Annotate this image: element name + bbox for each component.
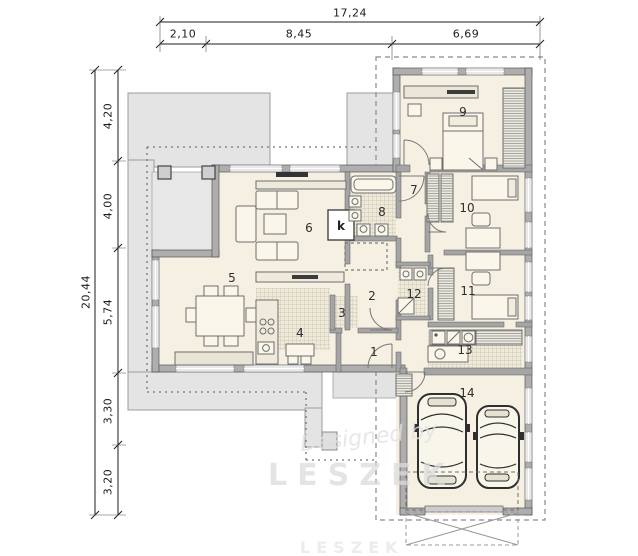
room-label-3: 3 xyxy=(338,306,346,320)
room-label-13: 13 xyxy=(457,343,472,357)
room-label-7: 7 xyxy=(410,183,418,197)
dim-top-total: 17,24 xyxy=(333,7,367,20)
room-label-1: 1 xyxy=(370,345,378,359)
room-label-6: 6 xyxy=(305,221,313,235)
room-label-5: 5 xyxy=(228,271,236,285)
room-label-14: 14 xyxy=(459,386,474,400)
room-label-9: 9 xyxy=(459,105,467,119)
floorplan-page: 17,24 2,10 8,45 6,69 20,44 4,20 4,00 5,7… xyxy=(0,0,638,556)
dim-top-seg-1: 2,10 xyxy=(170,28,197,41)
room-label-11: 11 xyxy=(460,284,475,298)
room-label-12: 12 xyxy=(406,287,421,301)
room-label-2: 2 xyxy=(368,289,376,303)
fireplace-label: k xyxy=(337,219,345,233)
car-right-icon xyxy=(473,406,524,488)
room-label-4: 4 xyxy=(296,326,304,340)
dim-left-seg-2: 4,00 xyxy=(102,193,115,220)
room-label-10: 10 xyxy=(459,201,474,215)
dim-left-seg-4: 3,30 xyxy=(102,398,115,425)
dim-left-seg-3: 5,74 xyxy=(102,299,115,326)
dim-top-seg-2: 8,45 xyxy=(286,28,313,41)
dim-left-seg-5: 3,20 xyxy=(102,469,115,496)
watermark-text: LESZEK xyxy=(268,458,455,493)
dim-left-total: 20,44 xyxy=(80,275,93,309)
dim-left-seg-1: 4,20 xyxy=(102,103,115,130)
room-label-8: 8 xyxy=(378,205,386,219)
watermark-bottom: LESZEK xyxy=(300,538,404,556)
dim-top-seg-3: 6,69 xyxy=(453,28,480,41)
